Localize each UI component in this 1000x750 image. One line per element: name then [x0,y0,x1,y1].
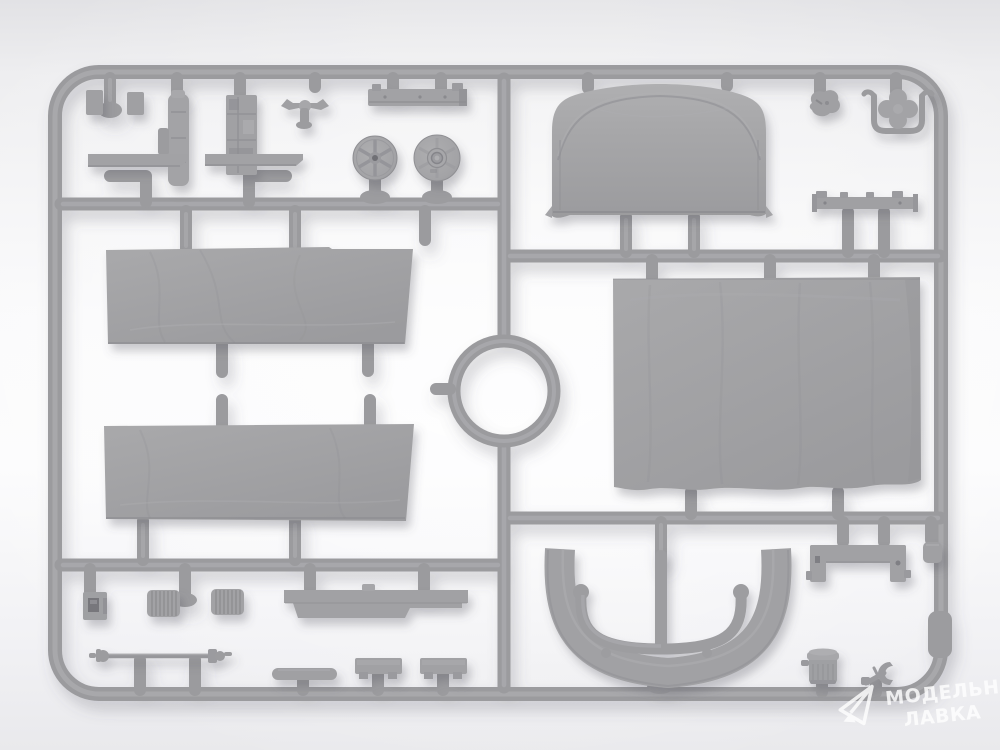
storage-box [83,592,107,620]
corrugated-muffler-1 [147,590,180,617]
canvas-roof-panel [545,84,773,218]
small-cube-fitting [923,542,942,563]
hub-wheel [414,135,460,181]
lower-left-tarpaulin [104,424,414,521]
frame-thick-section [928,611,952,658]
running-board-1 [88,154,188,167]
clover-wheel-with-bracket [864,89,932,131]
spoked-wheel [353,136,397,180]
running-board-2 [205,154,303,166]
large-right-tarpaulin [613,277,921,490]
model-kit-sprue-photo: МОДЕЛЬНАЯ ЛАВКА [0,0,1000,750]
upper-left-tarpaulin [106,247,413,344]
tool-blade [272,668,337,680]
corrugated-muffler-2 [211,589,244,615]
